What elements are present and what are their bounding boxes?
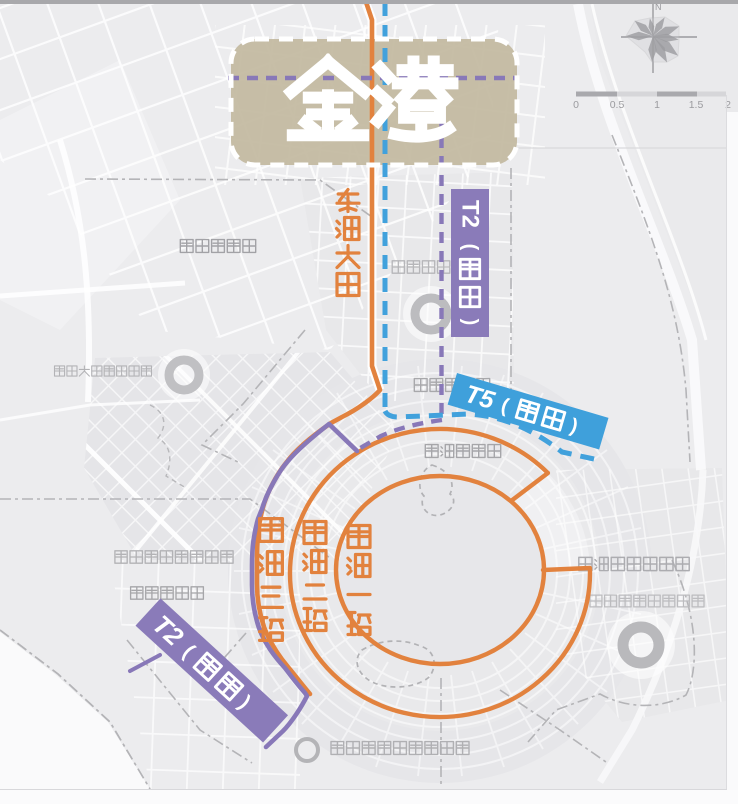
svg-text:1.5: 1.5 [689,99,704,111]
svg-text:0.5: 0.5 [610,99,625,111]
svg-text:1: 1 [654,99,660,111]
svg-text:2: 2 [725,99,731,111]
svg-text:): ) [459,319,481,326]
svg-text:T2: T2 [457,200,484,228]
svg-text:0: 0 [573,99,579,111]
svg-text:(: ( [459,244,481,251]
